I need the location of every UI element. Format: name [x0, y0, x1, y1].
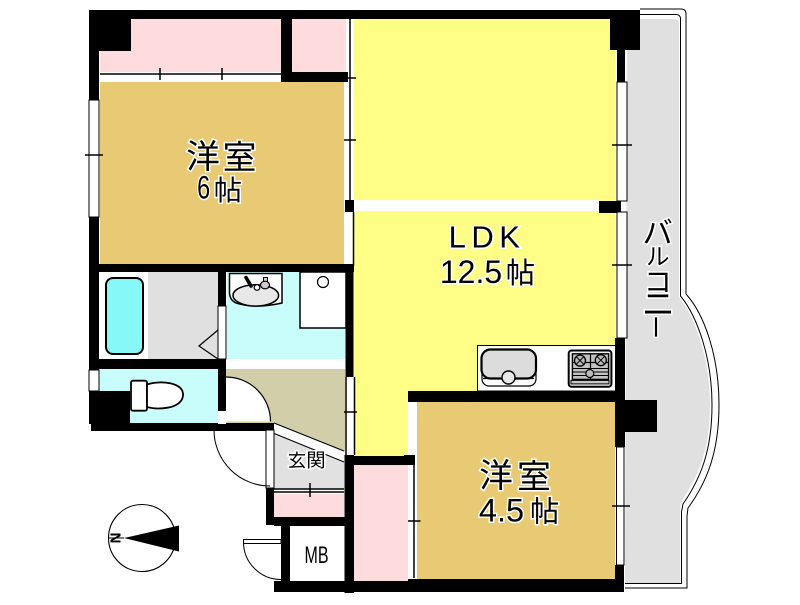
svg-text:MB: MB: [305, 542, 329, 569]
svg-text:LDK: LDK: [449, 220, 526, 255]
svg-text:4.5: 4.5: [479, 493, 524, 529]
svg-text:6: 6: [197, 170, 210, 206]
svg-text:12.5: 12.5: [440, 254, 502, 290]
svg-text:N: N: [108, 533, 125, 544]
